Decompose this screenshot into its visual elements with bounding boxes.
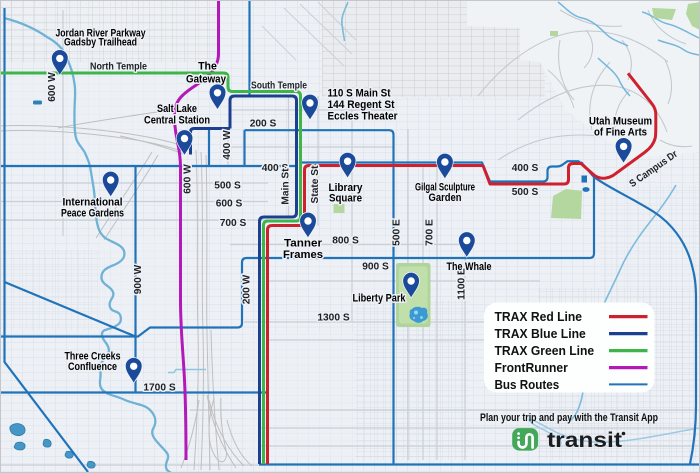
svg-text:FrontRunner: FrontRunner	[495, 360, 568, 375]
svg-text:Square: Square	[329, 193, 362, 205]
svg-text:600 S: 600 S	[216, 199, 243, 210]
svg-text:200 W: 200 W	[242, 274, 253, 304]
svg-text:Frames: Frames	[283, 249, 323, 261]
svg-text:TRAX Red Line: TRAX Red Line	[495, 309, 583, 324]
svg-text:500 S: 500 S	[512, 187, 539, 198]
svg-text:The: The	[198, 60, 217, 72]
svg-text:transit: transit	[547, 428, 622, 452]
svg-text:200 S: 200 S	[250, 119, 277, 130]
svg-text:900 S: 900 S	[362, 262, 389, 273]
svg-text:Central Station: Central Station	[144, 114, 210, 126]
svg-text:of Fine Arts: of Fine Arts	[594, 127, 647, 139]
svg-text:Salt Lake: Salt Lake	[157, 103, 197, 115]
svg-text:700 S: 700 S	[220, 218, 247, 229]
svg-text:Tanner: Tanner	[284, 238, 322, 250]
svg-text:500 S: 500 S	[214, 181, 241, 192]
svg-text:Eccles Theater: Eccles Theater	[328, 111, 398, 123]
svg-text:State St: State St	[310, 165, 321, 204]
svg-text:Confluence: Confluence	[68, 361, 117, 373]
svg-text:600 W: 600 W	[183, 164, 194, 194]
svg-text:1300 S: 1300 S	[317, 313, 349, 324]
svg-text:TRAX Blue Line: TRAX Blue Line	[495, 326, 586, 341]
svg-text:Peace Gardens: Peace Gardens	[61, 208, 124, 220]
svg-text:Gateway: Gateway	[186, 73, 226, 85]
svg-text:Plan your trip and pay with th: Plan your trip and pay with the Transit …	[480, 412, 658, 424]
svg-text:800 S: 800 S	[332, 236, 359, 247]
svg-text:400 S: 400 S	[512, 163, 539, 174]
svg-text:144 Regent St: 144 Regent St	[328, 99, 395, 111]
svg-text:Gadsby Trailhead: Gadsby Trailhead	[64, 37, 137, 49]
svg-text:Garden: Garden	[429, 192, 462, 204]
svg-text:900 W: 900 W	[133, 264, 144, 294]
svg-text:400 W: 400 W	[222, 130, 233, 160]
svg-text:700 E: 700 E	[425, 219, 436, 246]
svg-text:110 S Main St: 110 S Main St	[328, 88, 391, 100]
svg-text:Main St: Main St	[281, 168, 292, 205]
svg-text:Liberty Park: Liberty Park	[353, 293, 406, 305]
svg-text:South Temple: South Temple	[251, 81, 307, 92]
svg-text:North Temple: North Temple	[90, 62, 147, 73]
svg-text:TRAX Green Line: TRAX Green Line	[495, 343, 595, 358]
svg-text:Bus Routes: Bus Routes	[495, 377, 560, 392]
svg-text:500 E: 500 E	[392, 219, 403, 246]
svg-text:1700 S: 1700 S	[143, 383, 175, 394]
svg-text:The Whale: The Whale	[447, 261, 492, 273]
svg-text:600 W: 600 W	[47, 72, 58, 102]
